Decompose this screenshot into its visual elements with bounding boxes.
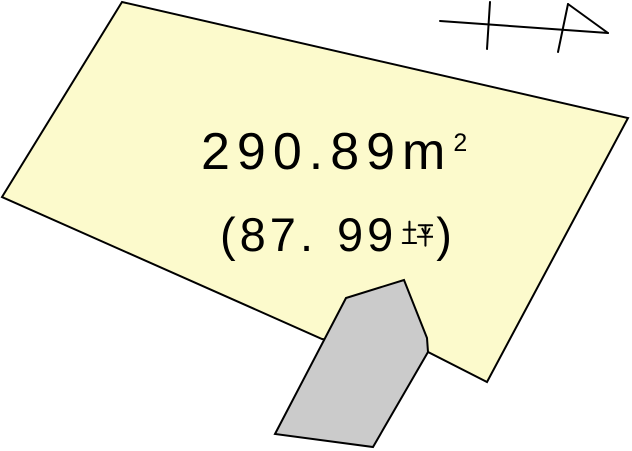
tsubo-fraction-part: 99 bbox=[337, 208, 397, 261]
tsubo-integer-part: 87 bbox=[240, 208, 300, 261]
tsubo-open-paren: ( bbox=[220, 208, 240, 261]
north-arrow-icon bbox=[440, 2, 608, 52]
tsubo-close-paren: ) bbox=[436, 208, 456, 261]
plot-diagram: 290.89m2 (87.99 ) bbox=[0, 0, 632, 451]
area-sqm-unit-exponent: 2 bbox=[453, 129, 467, 157]
land-parcel-shape bbox=[2, 2, 628, 382]
area-sqm-unit: m bbox=[402, 123, 452, 181]
area-sqm-value: 290.89 bbox=[201, 123, 402, 181]
tsubo-kanji-icon bbox=[401, 217, 433, 253]
area-tsubo-label: (87.99 ) bbox=[220, 211, 456, 258]
area-sqm-label: 290.89m2 bbox=[201, 126, 467, 178]
tsubo-decimal-point: . bbox=[300, 208, 317, 261]
